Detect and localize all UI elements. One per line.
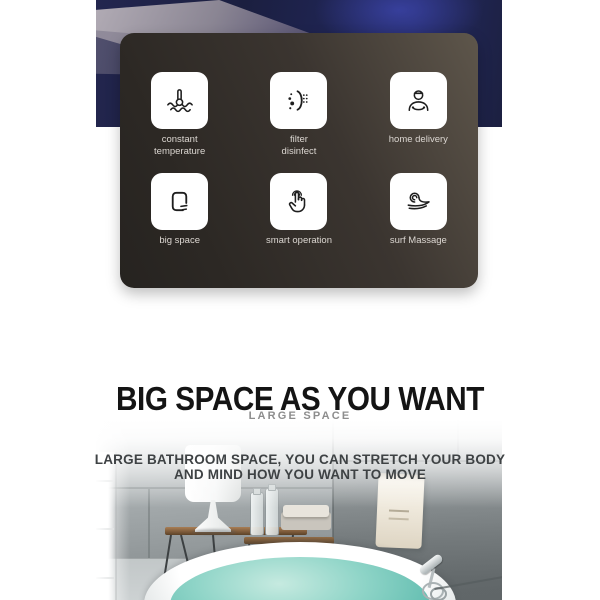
feature-label: surf Massage <box>390 235 447 247</box>
filter-disinfect-icon <box>283 85 314 116</box>
thermometer-wave-icon <box>164 85 195 116</box>
bathroom-photo <box>96 408 502 600</box>
product-page: constant temperature fi <box>0 0 600 600</box>
delivery-person-icon <box>403 85 434 116</box>
section-subtitle: LARGE SPACE <box>0 410 600 422</box>
feature-grid: constant temperature fi <box>120 33 478 288</box>
feature-card: constant temperature fi <box>120 33 478 288</box>
section-description: LARGE BATHROOM SPACE, YOU CAN STRETCH YO… <box>0 452 600 483</box>
feature-home-delivery: home delivery <box>389 72 448 146</box>
feature-label: constant temperature <box>154 134 205 158</box>
feature-label: home delivery <box>389 134 448 146</box>
feature-big-space: big space <box>151 173 208 247</box>
white-fade-overlay <box>96 408 502 600</box>
feature-tile <box>270 173 327 230</box>
feature-tile <box>270 72 327 129</box>
feature-surf-massage: surf Massage <box>390 173 447 247</box>
feature-label: filter disinfect <box>282 134 317 158</box>
feature-constant-temperature: constant temperature <box>151 72 208 158</box>
feature-tile <box>390 173 447 230</box>
big-space-icon <box>164 186 195 217</box>
feature-tile <box>390 72 447 129</box>
surf-wave-icon <box>403 186 434 217</box>
touch-finger-icon <box>283 186 314 217</box>
feature-tile <box>151 173 208 230</box>
white-fade-overlay <box>96 408 130 600</box>
feature-label: smart operation <box>266 235 332 247</box>
feature-tile <box>151 72 208 129</box>
feature-label: big space <box>159 235 200 247</box>
feature-smart-operation: smart operation <box>266 173 332 247</box>
feature-filter-disinfect: filter disinfect <box>270 72 327 158</box>
